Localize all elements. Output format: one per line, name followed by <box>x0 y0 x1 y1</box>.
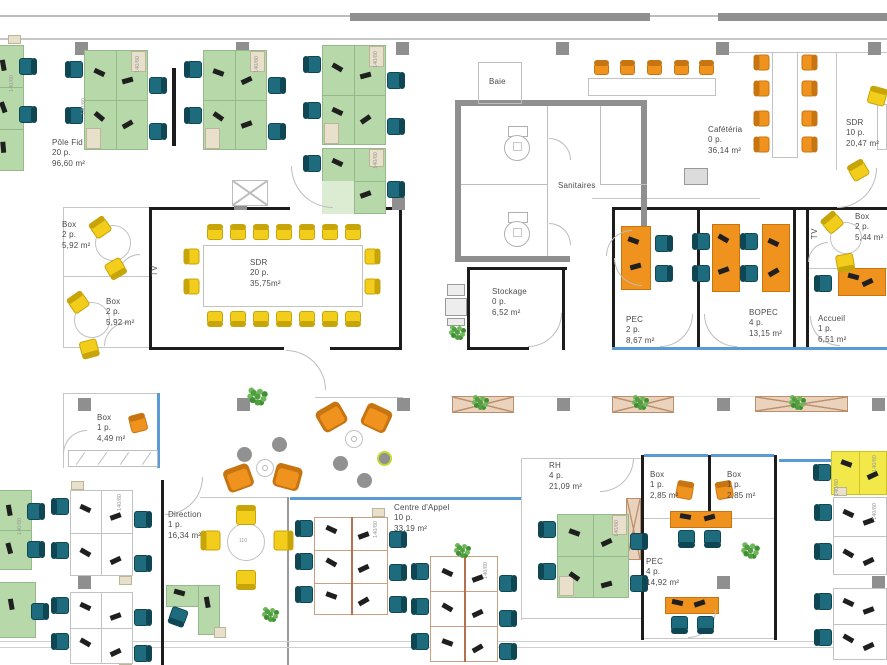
chair-back <box>128 412 146 422</box>
wall <box>467 347 529 350</box>
desk-size-tag: 140/80 <box>82 98 88 115</box>
chair-back <box>538 521 544 538</box>
plant-icon <box>455 330 460 335</box>
desk <box>712 224 740 292</box>
door-arc <box>808 242 828 262</box>
wall <box>149 207 290 210</box>
chair <box>187 279 200 295</box>
chair <box>306 155 321 172</box>
room-capacity: 1 p. <box>650 480 679 490</box>
desk-divider <box>354 148 355 214</box>
desk-size-tag: 140/80 <box>615 520 621 537</box>
room-area: 5,92 m² <box>106 318 135 328</box>
room-capacity: 4 p. <box>549 471 582 481</box>
door-arc <box>286 350 326 390</box>
room-name: PEC <box>646 557 679 567</box>
wall <box>711 454 774 457</box>
room-area: 14,92 m² <box>646 578 679 588</box>
chair-back <box>754 81 760 97</box>
chair <box>655 265 670 282</box>
desk <box>762 224 790 292</box>
armchair-seat <box>363 407 389 431</box>
chair <box>802 55 815 71</box>
cafeteria-table <box>772 52 798 158</box>
chair-back <box>161 123 167 140</box>
column <box>717 576 730 589</box>
chair-back <box>697 628 714 634</box>
chair <box>802 111 815 127</box>
chair-back <box>276 224 292 230</box>
chair <box>802 137 815 153</box>
pouf <box>272 437 287 452</box>
desk-divider <box>351 517 353 615</box>
room-capacity: 1 p. <box>727 480 756 490</box>
conference-table <box>203 245 363 307</box>
chair-back <box>814 504 820 521</box>
room-name: Box <box>650 470 679 480</box>
chair <box>387 72 402 89</box>
chair-back <box>51 498 57 515</box>
chair <box>54 633 69 650</box>
room-label-direction: Direction1 p.16,34 m² <box>168 510 201 541</box>
room-capacity: 10 p. <box>394 513 449 523</box>
room-label-baie: Baie <box>489 77 506 87</box>
chair-back <box>65 61 71 78</box>
chair-back <box>201 531 207 551</box>
chair <box>414 633 429 650</box>
room-area: 5,92 m² <box>62 241 91 251</box>
chair <box>54 542 69 559</box>
room-label-box-left-1: Box2 p.5,92 m² <box>62 220 91 251</box>
planter <box>612 396 674 413</box>
desk-size-tag: 140/80 <box>374 51 380 68</box>
chair <box>149 77 164 94</box>
chair-back <box>411 598 417 615</box>
room-label-accueil: Accueil1 p.6,51 m² <box>818 314 847 345</box>
chair <box>230 311 246 324</box>
armchair-seat <box>319 406 346 431</box>
wall <box>172 68 176 146</box>
chair <box>134 609 149 626</box>
shaft <box>232 180 268 206</box>
chair-back <box>146 555 152 572</box>
chair <box>387 118 402 135</box>
chair <box>322 311 338 324</box>
room-label-box-b2: Box1 p.2,85 m² <box>727 470 756 501</box>
wall <box>641 100 647 184</box>
chair-back <box>647 60 662 66</box>
caisson <box>71 481 84 490</box>
chair-back <box>161 77 167 94</box>
room-area: 21,09 m² <box>549 482 582 492</box>
wall <box>330 347 402 350</box>
wall <box>63 393 64 468</box>
chair-back <box>667 265 673 282</box>
chair-back <box>699 60 714 66</box>
room-name: SDR <box>250 258 281 268</box>
chair-back <box>184 249 190 265</box>
wall <box>161 480 164 665</box>
chair <box>31 603 46 620</box>
chair <box>134 645 149 662</box>
chair <box>697 616 714 631</box>
room-label-pec: PEC2 p.8,67 m² <box>626 315 655 346</box>
wall <box>806 207 809 350</box>
chair-back <box>31 58 37 75</box>
room-label-stockage: Stockage0 p.6,52 m² <box>492 287 527 318</box>
wall <box>779 459 831 462</box>
chair <box>671 616 688 631</box>
armchair-seat <box>226 468 252 491</box>
chair <box>743 233 758 250</box>
room-label-sdr-right: SDR10 p.20,47 m² <box>846 118 879 149</box>
chair-back <box>399 181 405 198</box>
room-area: 2,85 m² <box>727 491 756 501</box>
wall <box>562 267 565 350</box>
chair <box>695 233 710 250</box>
equipment <box>684 168 708 185</box>
room-capacity: 2 p. <box>106 307 135 317</box>
chair <box>253 311 269 324</box>
room-capacity: 2 p. <box>62 230 91 240</box>
room-name: Sanitaires <box>558 181 596 191</box>
chair-back <box>667 235 673 252</box>
chair-back <box>280 123 286 140</box>
chair <box>704 530 721 545</box>
chair <box>207 311 223 324</box>
chair-back <box>812 81 818 97</box>
chair <box>389 596 404 613</box>
door-arc <box>704 314 737 347</box>
chair-back <box>401 564 407 581</box>
wall <box>63 207 149 208</box>
chair-back <box>869 85 887 95</box>
chair-back <box>399 118 405 135</box>
chair-back <box>411 633 417 650</box>
desk-divider <box>833 624 887 625</box>
chair <box>134 511 149 528</box>
wall <box>455 100 461 262</box>
chair <box>743 265 758 282</box>
wall <box>521 458 522 620</box>
chair <box>187 107 202 124</box>
room-area: 36,14 m² <box>708 146 742 156</box>
room-name: Box <box>855 212 884 222</box>
wall <box>718 13 887 21</box>
room-area: 5,44 m² <box>855 233 884 243</box>
room-name: SDR <box>846 118 879 128</box>
wall <box>200 497 288 498</box>
chair-back <box>51 633 57 650</box>
room-label-sdr-main: SDR20 p.35,75m² <box>250 258 281 289</box>
wall <box>467 267 470 350</box>
wall <box>467 267 567 270</box>
column <box>396 42 409 55</box>
room-area: 2,85 m² <box>650 491 679 501</box>
desk-size-tag: 140/80 <box>835 479 841 496</box>
room-area: 6,51 m² <box>818 335 847 345</box>
door-arc <box>660 314 693 347</box>
wall <box>612 207 887 210</box>
chair-back <box>39 503 45 520</box>
room-name: Stockage <box>492 287 527 297</box>
door-arc <box>614 258 642 286</box>
column <box>237 398 250 411</box>
wall <box>63 347 149 348</box>
plant-icon <box>795 400 800 405</box>
door-arc <box>549 138 571 160</box>
desk-size-tag: 140/80 <box>873 455 879 472</box>
chair-back <box>594 60 609 66</box>
chair-back <box>184 107 190 124</box>
chair <box>345 227 361 240</box>
chair <box>168 606 189 626</box>
chair <box>27 503 42 520</box>
chair-back <box>813 464 819 481</box>
chair-back <box>81 350 100 360</box>
chair <box>187 61 202 78</box>
desk-size-tag: 140/80 <box>255 56 261 73</box>
chair <box>835 253 855 271</box>
toilet-icon <box>513 142 522 151</box>
room-capacity: 0 p. <box>708 135 742 145</box>
desk-divider <box>859 451 860 495</box>
desk-size-tag: 140/80 <box>873 503 879 520</box>
room-area: 13,15 m² <box>749 329 782 339</box>
chair-back <box>740 233 746 250</box>
water-cooler-icon <box>445 298 467 316</box>
desk-divider <box>593 514 594 598</box>
chair <box>620 63 635 75</box>
chair <box>276 311 292 324</box>
chair-back <box>692 265 698 282</box>
chair-back <box>299 321 315 327</box>
desk-divider <box>0 530 32 531</box>
chair <box>236 570 256 587</box>
caisson <box>119 576 132 585</box>
chair <box>817 629 832 646</box>
armchair <box>359 401 394 434</box>
caisson <box>205 128 220 149</box>
plant-icon <box>478 400 483 405</box>
chair-back <box>345 224 361 230</box>
planter <box>452 396 514 413</box>
chair-back <box>207 224 223 230</box>
chair-back <box>43 603 49 620</box>
chair <box>817 504 832 521</box>
caisson <box>214 627 226 638</box>
wall <box>63 276 149 277</box>
wall <box>0 15 350 17</box>
room-area: 4,49 m² <box>97 434 126 444</box>
room-name: Box <box>727 470 756 480</box>
chair <box>817 543 832 560</box>
chair-back <box>146 609 152 626</box>
chair-back <box>692 233 698 250</box>
toilet-icon <box>513 228 522 237</box>
chair-back <box>288 531 294 551</box>
chair <box>802 81 815 97</box>
pouf <box>357 473 372 488</box>
armchair <box>271 462 303 492</box>
wall <box>650 15 718 17</box>
column <box>872 398 885 411</box>
column <box>868 42 881 55</box>
room-name: BOPEC <box>749 308 782 318</box>
chair <box>678 530 695 545</box>
chair-back <box>511 643 517 660</box>
wall <box>600 106 601 184</box>
chair-back <box>399 72 405 89</box>
chair-back <box>411 563 417 580</box>
room-name: Centre d'Appel <box>394 503 449 513</box>
wall <box>774 455 777 640</box>
chair-back <box>253 224 269 230</box>
room-label-pole-fid: Pôle Fid20 p.96,60 m² <box>52 138 85 169</box>
desk-size-tag: 140/80 <box>10 75 16 92</box>
chair <box>128 415 148 434</box>
wall <box>600 184 647 185</box>
laptop-icon <box>1 142 6 153</box>
chair-back <box>674 60 689 66</box>
chair <box>655 235 670 252</box>
chair-back <box>65 107 71 124</box>
chair <box>27 541 42 558</box>
water-cooler-icon <box>447 284 465 296</box>
chair <box>78 338 99 357</box>
chair <box>345 311 361 324</box>
room-area: 33,19 m² <box>394 524 449 534</box>
room-name: Box <box>106 297 135 307</box>
column <box>716 42 729 55</box>
room-capacity: 4 p. <box>646 567 679 577</box>
chair-back <box>322 224 338 230</box>
room-name: PEC <box>626 315 655 325</box>
chair-back <box>146 511 152 528</box>
armchair <box>222 462 256 494</box>
chair-back <box>814 275 820 292</box>
desk-divider <box>235 50 236 150</box>
chair-back <box>276 321 292 327</box>
room-capacity: 1 p. <box>168 520 201 530</box>
chair-back <box>620 60 635 66</box>
column <box>78 398 91 411</box>
chair <box>204 531 221 551</box>
chair-back <box>39 541 45 558</box>
door-arc <box>528 313 562 347</box>
chair <box>268 77 283 94</box>
chair <box>134 555 149 572</box>
desk-divider <box>116 50 117 150</box>
chair-back <box>814 629 820 646</box>
chair <box>541 563 556 580</box>
desk-divider <box>354 45 355 145</box>
chair <box>276 227 292 240</box>
wall <box>592 198 760 199</box>
chair <box>499 643 514 660</box>
plant-icon <box>268 612 273 617</box>
chair-back <box>538 563 544 580</box>
chair-back <box>236 584 256 590</box>
chair <box>594 63 609 75</box>
chair <box>54 498 69 515</box>
chair <box>699 63 714 75</box>
door-arc <box>606 230 632 256</box>
column <box>78 576 91 589</box>
room-name: Accueil <box>818 314 847 324</box>
desk-size-tag: 140/80 <box>484 562 490 579</box>
room-capacity: 10 p. <box>846 128 879 138</box>
room-name: Box <box>62 220 91 230</box>
chair-back <box>846 158 865 172</box>
room-label-sanitaires: Sanitaires <box>558 181 596 191</box>
chair-back <box>812 137 818 153</box>
desk-size-tag: 140/80 <box>374 152 380 169</box>
chair <box>207 227 223 240</box>
room-label-pec-4: PEC4 p.14,92 m² <box>646 557 679 588</box>
chair-back <box>375 279 381 295</box>
chair <box>499 575 514 592</box>
chair-back <box>146 645 152 662</box>
chair-back <box>230 224 246 230</box>
chair <box>817 275 832 292</box>
room-label-cafeteria: Cafétéria0 p.36,14 m² <box>708 125 742 156</box>
wall <box>290 497 521 500</box>
plant-icon <box>460 548 465 553</box>
armchair <box>314 400 349 434</box>
chair-back <box>230 321 246 327</box>
chair <box>187 249 200 265</box>
chair-back <box>299 224 315 230</box>
desk-size-tag: 140/80 <box>136 56 142 73</box>
chair <box>757 111 770 127</box>
chair-back <box>704 542 721 548</box>
desk-divider <box>833 536 887 537</box>
room-name: Pôle Fid <box>52 138 85 148</box>
room-capacity: 4 p. <box>749 318 782 328</box>
chair <box>236 508 256 525</box>
floor-plan: 140/80140/80140/80140/80140/80140/80140/… <box>0 0 887 665</box>
wall <box>547 106 548 256</box>
room-name: Baie <box>489 77 506 87</box>
counter <box>588 78 716 96</box>
wall <box>149 207 152 350</box>
wall <box>287 497 289 665</box>
chair-back <box>295 520 301 537</box>
desk-size-tag: 140/80 <box>118 494 124 511</box>
chair <box>757 55 770 71</box>
planter <box>755 396 848 412</box>
wall <box>836 52 837 170</box>
column <box>397 398 410 411</box>
wall <box>612 347 887 350</box>
pouf <box>237 447 252 462</box>
chair <box>757 137 770 153</box>
chair-back <box>303 56 309 73</box>
room-name: Cafétéria <box>708 125 742 135</box>
chair <box>414 563 429 580</box>
chair <box>306 56 321 73</box>
chair <box>299 227 315 240</box>
chair <box>647 63 662 75</box>
room-label-box-mid: Box1 p.4,49 m² <box>97 413 126 444</box>
door-arc <box>63 430 87 454</box>
column <box>717 398 730 411</box>
room-capacity: 0 p. <box>492 297 527 307</box>
coffee-icon <box>351 436 357 442</box>
room-label-rh: RH4 p.21,09 m² <box>549 461 582 492</box>
caisson <box>86 128 101 149</box>
